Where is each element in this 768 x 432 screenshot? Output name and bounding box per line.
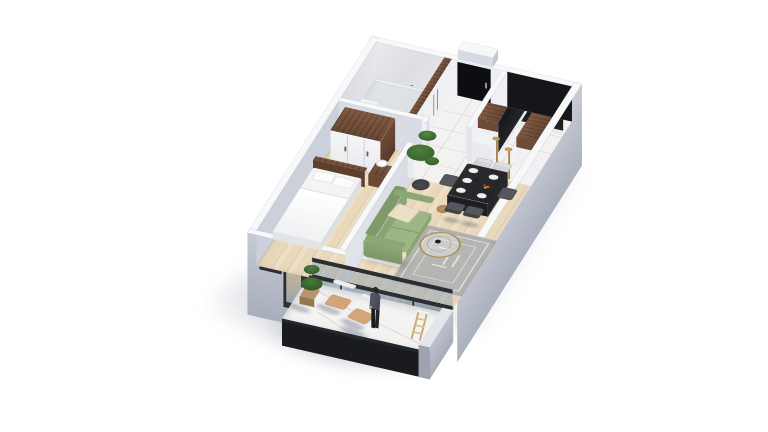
door-handle (485, 83, 487, 89)
floorplan-render: 3D isometric cutaway floor plan render o… (0, 0, 768, 432)
